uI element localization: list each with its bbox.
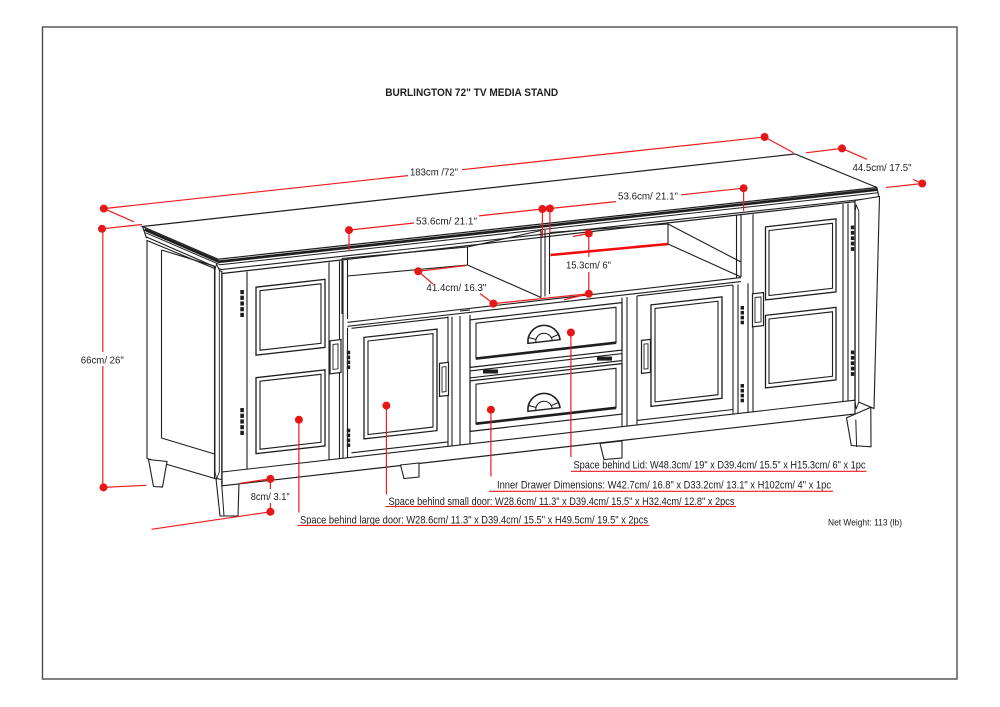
svg-text:8cm/ 3.1": 8cm/ 3.1": [251, 492, 290, 503]
svg-text:Inner Drawer Dimensions: W42.7: Inner Drawer Dimensions: W42.7cm/ 16.8" …: [497, 480, 831, 492]
svg-text:41.4cm/ 16.3": 41.4cm/ 16.3": [426, 283, 486, 294]
svg-text:Space behind Lid: W48.3cm/ 19": Space behind Lid: W48.3cm/ 19" x D39.4cm…: [574, 460, 866, 472]
svg-text:53.6cm/ 21.1": 53.6cm/ 21.1": [416, 217, 477, 228]
svg-text:BURLINGTON 72" TV MEDIA STAND: BURLINGTON 72" TV MEDIA STAND: [385, 87, 558, 99]
svg-text:183cm /72": 183cm /72": [410, 168, 458, 179]
svg-text:44.5cm/ 17.5": 44.5cm/ 17.5": [853, 163, 912, 174]
svg-text:Net Weight: 113 (lb): Net Weight: 113 (lb): [828, 518, 902, 529]
svg-text:Space behind large door: W28.6: Space behind large door: W28.6cm/ 11.3" …: [300, 515, 648, 527]
svg-text:15.3cm/ 6": 15.3cm/ 6": [566, 261, 611, 272]
svg-text:66cm/ 26": 66cm/ 26": [81, 356, 124, 367]
svg-text:53.6cm/ 21.1": 53.6cm/ 21.1": [618, 192, 678, 203]
